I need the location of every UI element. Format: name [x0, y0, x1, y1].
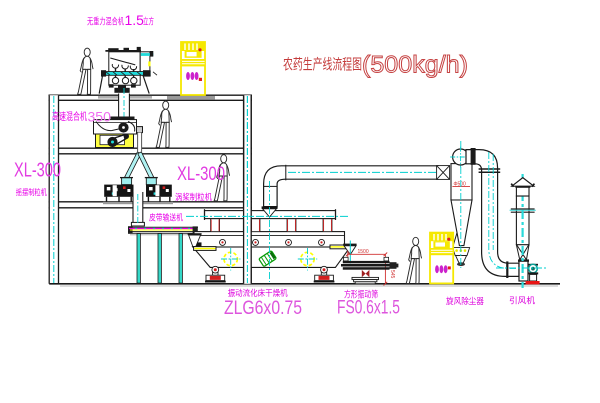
svg-text:FS0.6x1.5: FS0.6x1.5 [337, 298, 400, 319]
svg-text:高速混合机: 高速混合机 [52, 110, 87, 123]
svg-text:立方: 立方 [143, 16, 154, 27]
svg-text:XL-300: XL-300 [177, 164, 225, 185]
svg-text:(500kg/h): (500kg/h) [362, 52, 468, 79]
svg-text:农药生产线流程图: 农药生产线流程图 [283, 57, 362, 74]
svg-text:皮带输送机: 皮带输送机 [149, 213, 183, 223]
svg-text:旋风除尘器: 旋风除尘器 [446, 296, 484, 306]
svg-text:XL-300: XL-300 [14, 160, 61, 182]
svg-text:545: 545 [389, 270, 395, 279]
svg-text:1.5: 1.5 [125, 12, 145, 28]
svg-text:无重力混合机: 无重力混合机 [87, 16, 124, 27]
svg-text:1500: 1500 [358, 249, 369, 255]
svg-text:ZLG6x0.75: ZLG6x0.75 [224, 298, 302, 319]
svg-text:振动流化床干燥机: 振动流化床干燥机 [228, 288, 288, 298]
svg-text:摇摆制粒机: 摇摆制粒机 [16, 187, 47, 197]
svg-text:引风机: 引风机 [509, 296, 535, 306]
svg-text:涡桨制粒机: 涡桨制粒机 [175, 192, 212, 202]
svg-text:350: 350 [88, 109, 112, 125]
